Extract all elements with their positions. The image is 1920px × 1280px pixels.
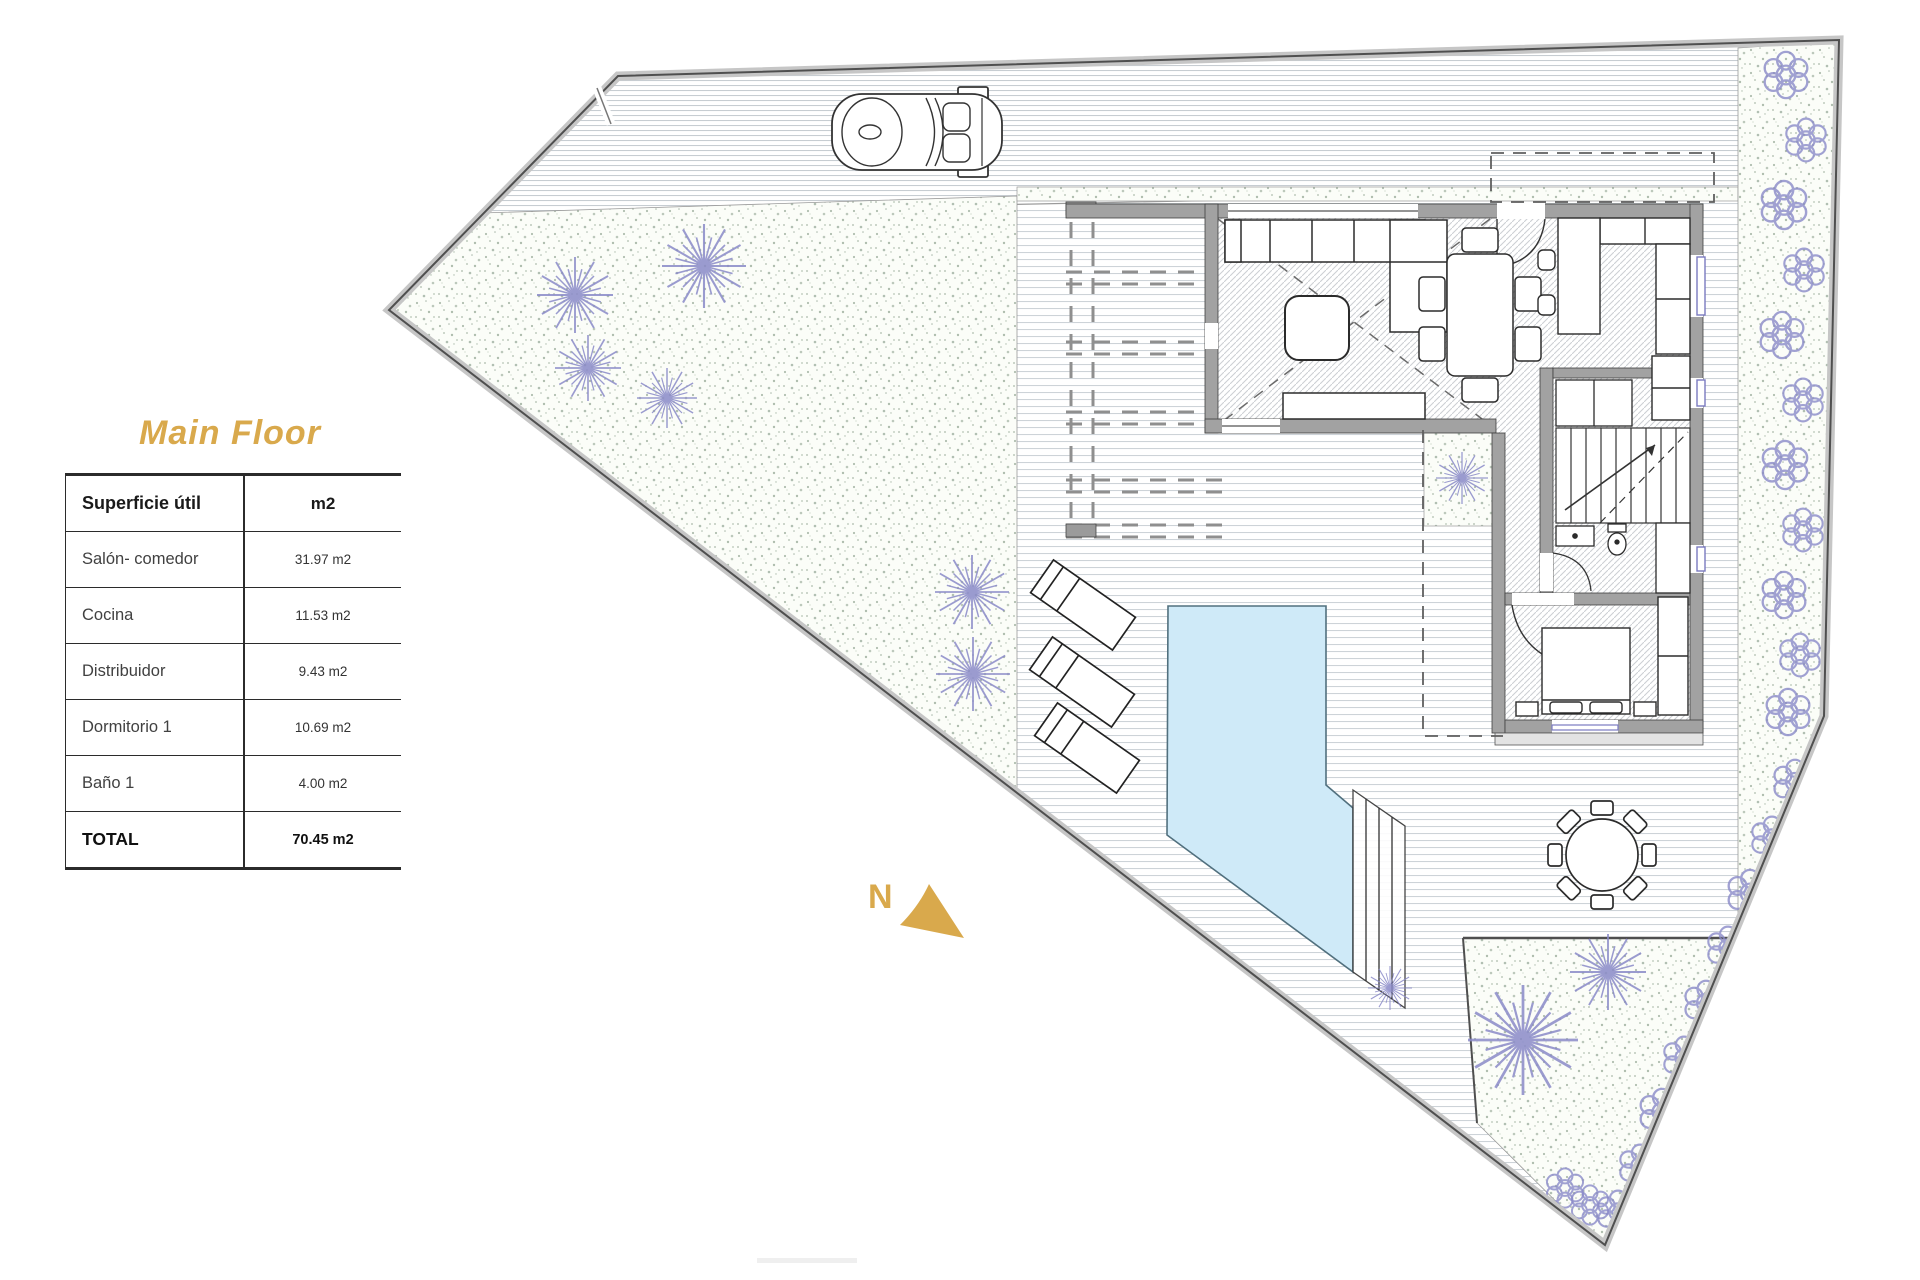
- bathroom-closet: [1656, 523, 1690, 593]
- nightstand: [1634, 702, 1656, 716]
- car-seat: [943, 134, 970, 162]
- patio-step: [1495, 733, 1703, 745]
- sideboard: [1283, 393, 1425, 419]
- pillow: [1550, 702, 1582, 713]
- bar-stool: [1538, 295, 1555, 315]
- north-arrow-icon: [900, 884, 964, 938]
- floor-plan-page: Main Floor Superficie útil m2 Salón- com…: [0, 0, 1920, 1280]
- watermark-fragment: [757, 1258, 857, 1263]
- north-arrow: N: [868, 878, 964, 938]
- nightstand: [1516, 702, 1538, 716]
- pillow: [1590, 702, 1622, 713]
- porch-column: [1066, 524, 1096, 537]
- car: [832, 87, 1002, 177]
- closet: [1556, 380, 1632, 426]
- kitchen-island: [1558, 218, 1600, 334]
- north-label: N: [868, 878, 893, 916]
- stairs: [1556, 428, 1690, 523]
- coffee-table: [1285, 296, 1349, 360]
- car-seat: [943, 103, 970, 131]
- garden-strip-top: [1017, 187, 1738, 201]
- bed: [1542, 628, 1630, 714]
- toilet-tank: [1608, 524, 1626, 532]
- bar-stool: [1538, 250, 1555, 270]
- site-plan: N: [0, 0, 1920, 1280]
